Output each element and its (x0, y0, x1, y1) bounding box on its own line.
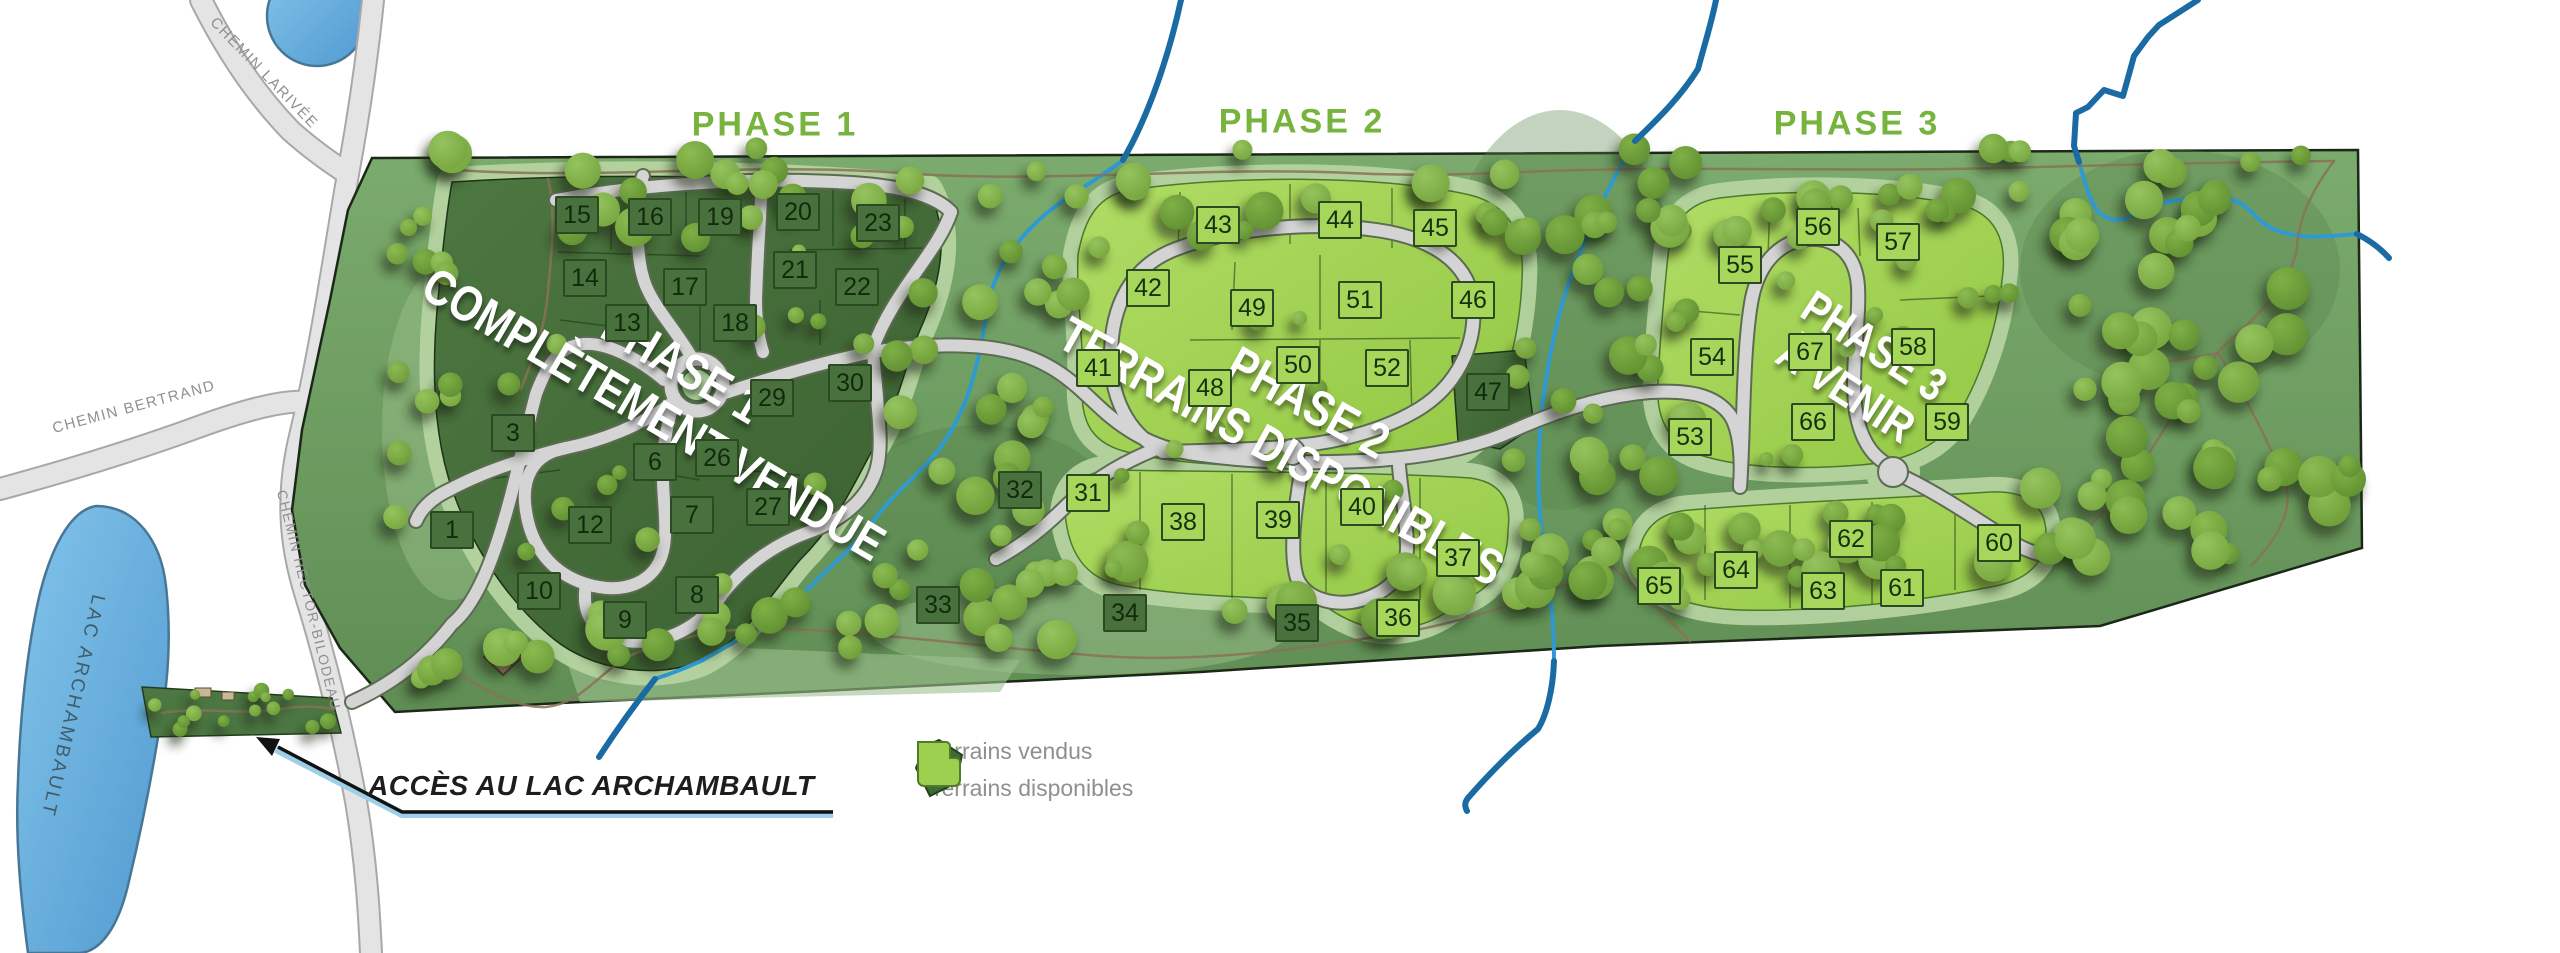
lot-marker-63: 63 (1801, 572, 1845, 610)
lot-marker-12: 12 (568, 506, 612, 544)
lot-marker-21: 21 (773, 251, 817, 289)
lot-marker-41: 41 (1076, 349, 1120, 387)
lot-marker-53: 53 (1668, 418, 1712, 456)
lot-marker-3: 3 (491, 414, 535, 452)
lot-marker-31: 31 (1066, 474, 1110, 512)
lot-marker-47: 47 (1466, 373, 1510, 411)
lot-marker-18: 18 (713, 304, 757, 342)
pond (267, 0, 367, 66)
lot-marker-37: 37 (1436, 539, 1480, 577)
lot-marker-45: 45 (1413, 209, 1457, 247)
lot-marker-9: 9 (603, 601, 647, 639)
lot-marker-39: 39 (1256, 501, 1300, 539)
lot-marker-56: 56 (1796, 208, 1840, 246)
lot-marker-42: 42 (1126, 269, 1170, 307)
lot-marker-54: 54 (1690, 338, 1734, 376)
lot-marker-26: 26 (695, 439, 739, 477)
available-lot-icon (912, 738, 966, 790)
lot-marker-64: 64 (1714, 551, 1758, 589)
lot-marker-22: 22 (835, 268, 879, 306)
lot-marker-32: 32 (998, 471, 1042, 509)
lot-marker-67: 67 (1788, 333, 1832, 371)
lot-marker-27: 27 (746, 488, 790, 526)
lot-marker-55: 55 (1718, 246, 1762, 284)
lot-marker-57: 57 (1876, 223, 1920, 261)
lot-marker-30: 30 (828, 364, 872, 402)
lot-marker-1: 1 (430, 511, 474, 549)
lot-marker-52: 52 (1365, 349, 1409, 387)
lot-marker-46: 46 (1451, 281, 1495, 319)
cul-de-sac-phase3 (1878, 457, 1908, 487)
lot-marker-59: 59 (1925, 403, 1969, 441)
lot-marker-51: 51 (1338, 281, 1382, 319)
lot-marker-65: 65 (1637, 567, 1681, 605)
lot-marker-36: 36 (1376, 599, 1420, 637)
lot-marker-13: 13 (605, 304, 649, 342)
development-map: PHASE 1 PHASE 2 PHASE 3 PHASE 1 COMPLÈTE… (0, 0, 2560, 953)
lot-marker-8: 8 (675, 576, 719, 614)
lot-marker-50: 50 (1276, 346, 1320, 384)
lot-marker-66: 66 (1791, 403, 1835, 441)
lot-marker-43: 43 (1196, 206, 1240, 244)
lot-marker-60: 60 (1977, 524, 2021, 562)
lot-marker-58: 58 (1891, 328, 1935, 366)
lot-marker-23: 23 (856, 204, 900, 242)
lot-marker-19: 19 (698, 198, 742, 236)
lot-marker-10: 10 (517, 572, 561, 610)
lot-marker-62: 62 (1829, 520, 1873, 558)
lot-marker-17: 17 (663, 268, 707, 306)
lot-marker-15: 15 (555, 196, 599, 234)
lot-marker-61: 61 (1880, 569, 1924, 607)
lot-marker-40: 40 (1340, 488, 1384, 526)
legend: Terrains vendus Terrains disponibles (912, 738, 1133, 812)
lot-marker-29: 29 (750, 379, 794, 417)
lot-marker-20: 20 (776, 193, 820, 231)
lot-marker-35: 35 (1275, 604, 1319, 642)
lot-marker-33: 33 (916, 586, 960, 624)
lot-marker-7: 7 (670, 496, 714, 534)
lot-marker-14: 14 (563, 259, 607, 297)
lot-marker-48: 48 (1188, 369, 1232, 407)
phase1-header: PHASE 1 (692, 106, 859, 145)
lot-marker-6: 6 (633, 443, 677, 481)
phase3-header: PHASE 3 (1774, 105, 1941, 144)
access-note: ACCÈS AU LAC ARCHAMBAULT (368, 770, 814, 802)
lot-marker-49: 49 (1230, 289, 1274, 327)
phase2-header: PHASE 2 (1219, 103, 1386, 142)
lot-marker-38: 38 (1161, 503, 1205, 541)
lot-marker-44: 44 (1318, 201, 1362, 239)
lot-marker-34: 34 (1103, 594, 1147, 632)
lot-marker-16: 16 (628, 198, 672, 236)
